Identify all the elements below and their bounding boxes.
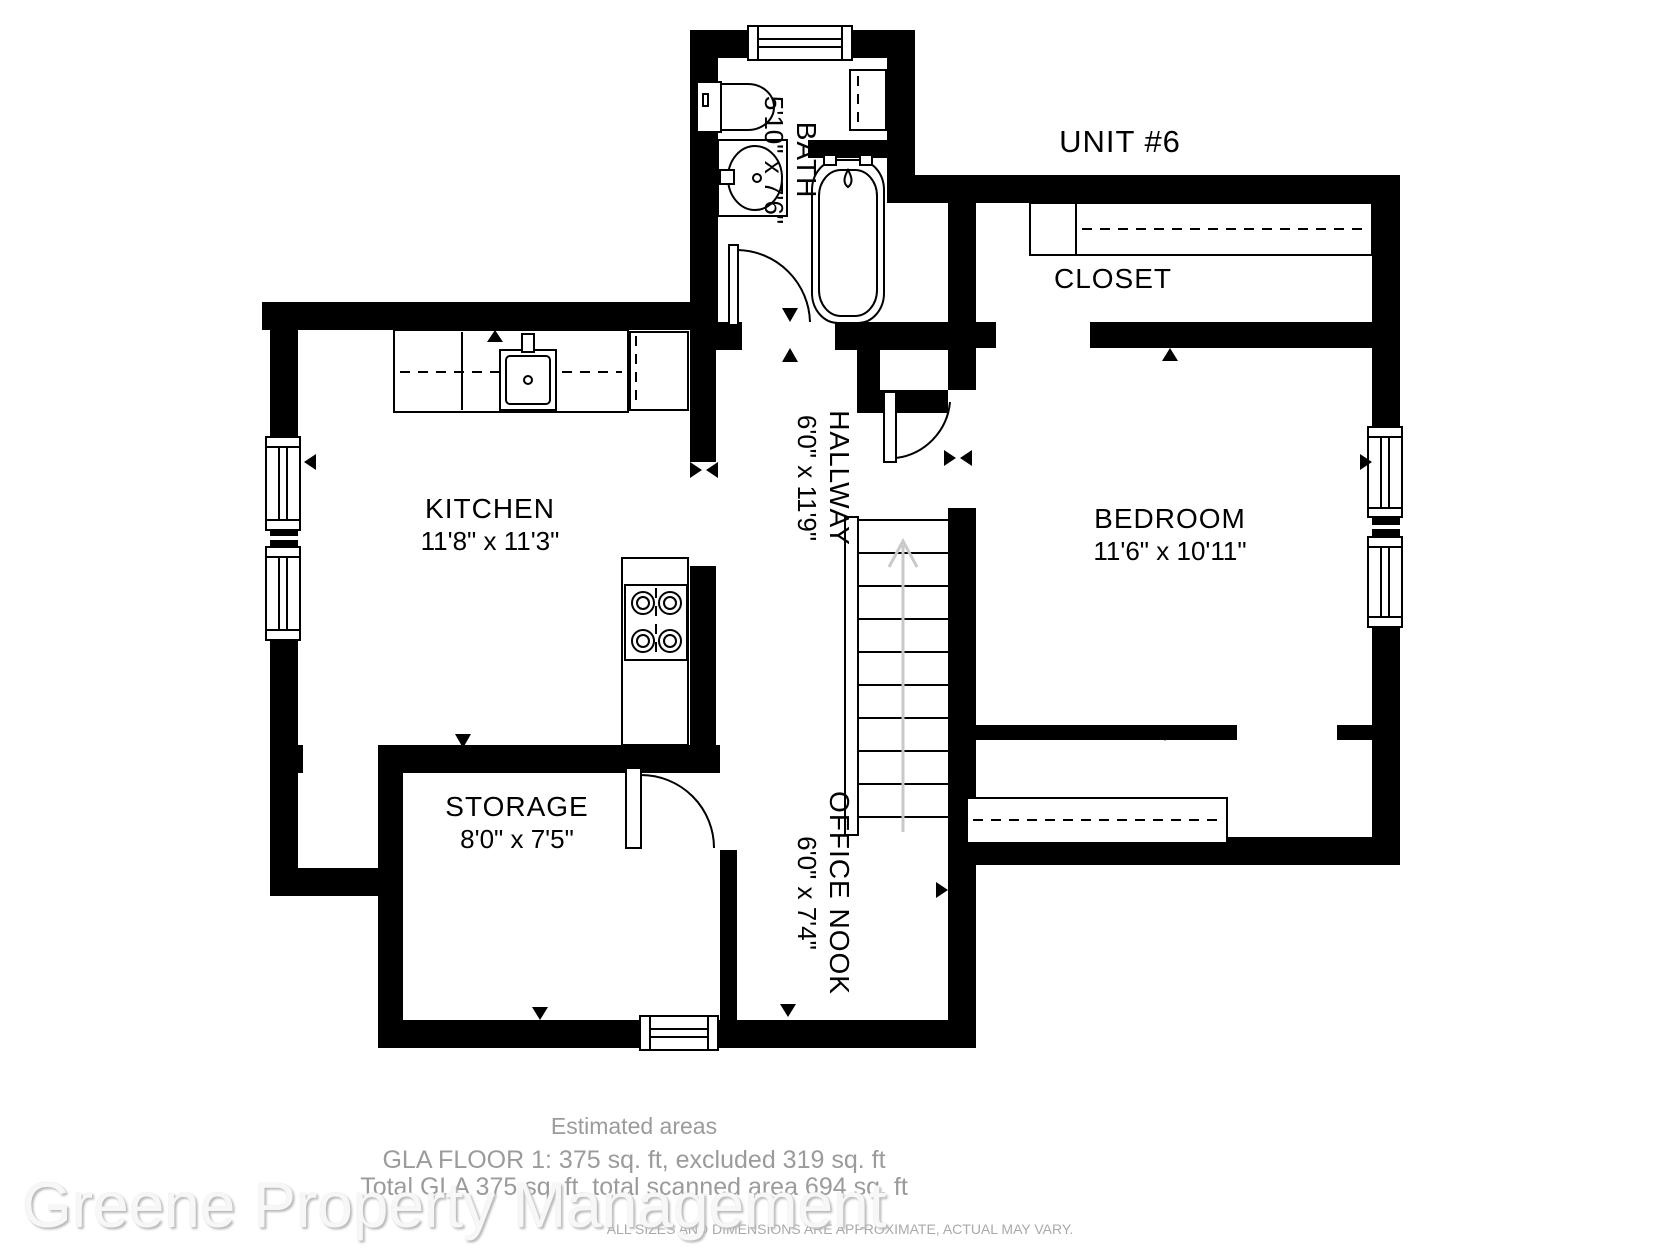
unit-label: UNIT #6 <box>1059 124 1181 159</box>
marker-kitchen-hall-right <box>706 462 718 478</box>
wall-kitchen-top <box>262 302 718 330</box>
wall-bedroom-divider <box>963 725 1237 740</box>
bath-dims: 5'10" x 7'6" <box>759 96 789 224</box>
marker-bath-door-top <box>782 308 798 322</box>
marker-storage-bottom <box>532 1007 548 1020</box>
stairs-direction-arrow <box>889 541 917 832</box>
marker-closet-entry <box>1162 348 1178 361</box>
closet-label: CLOSET <box>1054 263 1172 294</box>
floor-plan-page: UNIT #6 CLOSET BEDROOM 11'6" x 10'11" KI… <box>0 0 1680 1260</box>
staircase <box>845 517 948 835</box>
bedroom-dims: 11'6" x 10'11" <box>1093 536 1246 566</box>
wall-closet-bottom <box>1090 322 1372 348</box>
marker-office-window <box>780 1004 796 1017</box>
wall-alcove-bottom <box>270 868 383 896</box>
stove-icon <box>622 558 688 745</box>
window-kitchen-2 <box>266 547 300 640</box>
marker-bedroom-door-right <box>960 450 972 466</box>
kitchen-cabinet-right <box>630 332 688 410</box>
kitchen-counter <box>394 330 628 412</box>
window-bedroom-2 <box>1368 537 1402 627</box>
wall-office-right <box>948 837 976 1048</box>
wall-storage-right <box>720 850 737 1020</box>
wall-unit-top <box>887 175 1400 203</box>
marker-kitchen-window <box>304 454 316 470</box>
bath-label: BATH <box>791 122 822 199</box>
kitchen-label: KITCHEN <box>425 493 555 524</box>
wall-bedroom-divider-stub <box>1337 725 1372 740</box>
hallway-label: HALLWAY <box>824 410 855 546</box>
wall-bath-bottom-left <box>718 322 742 350</box>
wall-closet-bottom-stub <box>976 322 996 348</box>
marker-bedroom-door-left <box>944 450 956 466</box>
wall-kitchen-bottom-stub <box>290 745 303 773</box>
bath-cabinet <box>850 70 886 130</box>
hallway-dims: 6'0" x 11'9" <box>792 415 822 541</box>
wall-kitchen-left-upper <box>270 302 298 437</box>
door-storage <box>626 768 714 848</box>
marker-kitchen-hall-left <box>690 462 702 478</box>
wall-kitchen-right-upper <box>690 330 716 462</box>
storage-label: STORAGE <box>445 791 588 822</box>
window-bedroom-1 <box>1368 427 1402 517</box>
storage-dims: 8'0" x 7'5" <box>460 824 574 854</box>
office-nook-dims: 6'0" x 7'4" <box>792 836 822 950</box>
closet-shelf <box>1030 203 1372 255</box>
kitchen-dims: 11'8" x 11'3" <box>421 526 560 556</box>
wall-storage-top <box>378 745 720 773</box>
wall-bath-right <box>887 30 915 175</box>
door-bath <box>729 245 810 325</box>
wall-kitchen-right-lower <box>690 566 716 745</box>
marker-bath-door-bottom <box>782 348 798 362</box>
bedroom-label: BEDROOM <box>1094 503 1246 534</box>
wall-closet-left-upper <box>948 203 976 390</box>
window-kitchen-1 <box>266 437 300 530</box>
window-bath <box>748 26 852 60</box>
marker-office-right <box>936 882 948 898</box>
wall-storage-left <box>378 745 403 1048</box>
office-nook-label: OFFICE NOOK <box>824 791 855 995</box>
window-office-nook <box>640 1016 718 1050</box>
floor-plan-svg: UNIT #6 CLOSET BEDROOM 11'6" x 10'11" KI… <box>0 0 1680 1260</box>
footer-estimated-areas: Estimated areas <box>0 1113 1474 1140</box>
bedroom-wardrobe <box>967 798 1227 843</box>
watermark-text: Greene Property Management <box>22 1168 886 1242</box>
